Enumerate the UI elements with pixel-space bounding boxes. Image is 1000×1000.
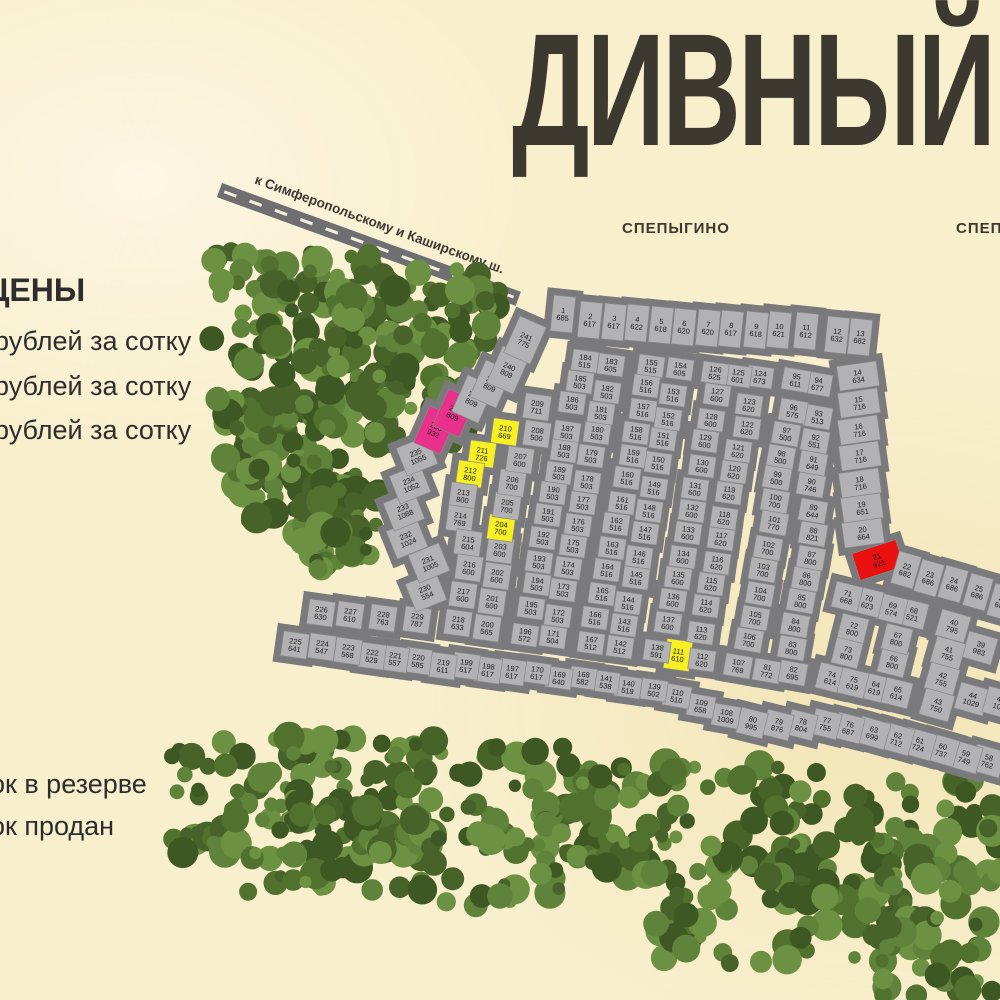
tree: [320, 517, 350, 547]
plot-95[interactable]: 95611: [781, 367, 811, 393]
plot-label: 215604: [461, 534, 476, 552]
tree: [214, 753, 238, 777]
legend-sold-label: ок продан: [0, 811, 114, 842]
tree: [667, 795, 689, 817]
plot-196[interactable]: 196572: [511, 623, 540, 647]
tree: [706, 878, 732, 904]
plot-112[interactable]: 112620: [688, 648, 717, 672]
plot-92[interactable]: 92551: [800, 428, 830, 454]
plot-102[interactable]: 102700: [753, 535, 783, 561]
tree: [249, 847, 261, 859]
plot-12[interactable]: 12632: [824, 316, 850, 354]
tree: [843, 784, 867, 808]
tree: [332, 857, 353, 878]
tree: [789, 780, 811, 802]
plot-135[interactable]: 135600: [664, 566, 693, 590]
plot-224[interactable]: 224547: [307, 633, 336, 661]
plot-10[interactable]: 10621: [766, 311, 792, 349]
plot-label: 128600: [704, 411, 719, 429]
plot-label: 185503: [573, 373, 588, 391]
plot-158[interactable]: 158516: [622, 421, 651, 445]
plot-label: 116620: [710, 554, 725, 572]
plot-label: 212800: [463, 465, 478, 483]
tree: [979, 819, 997, 837]
plot-165[interactable]: 165516: [588, 582, 617, 606]
tree: [911, 863, 943, 895]
plot-107[interactable]: 107769: [723, 653, 753, 679]
plot-148[interactable]: 148516: [635, 499, 664, 523]
plot-label: 156516: [639, 377, 654, 395]
plot-label: 197617: [505, 663, 520, 681]
tree: [289, 802, 313, 826]
tree: [258, 426, 277, 445]
plot-label: 214769: [453, 510, 468, 528]
plot-184[interactable]: 184515: [571, 349, 600, 373]
plot-label: 200565: [480, 619, 495, 637]
tree: [387, 746, 404, 763]
tree: [856, 822, 876, 842]
plot-label: 168582: [576, 669, 591, 687]
plot-3[interactable]: 3617: [601, 303, 627, 341]
plot-137[interactable]: 137600: [654, 611, 683, 635]
plot-17[interactable]: 17716: [838, 441, 881, 471]
plot-142[interactable]: 142512: [606, 635, 635, 659]
tree: [331, 483, 347, 499]
plot-119[interactable]: 119620: [715, 481, 744, 505]
plot-14[interactable]: 14634: [836, 361, 879, 391]
plot-label: 173503: [556, 581, 571, 599]
plot-157[interactable]: 157516: [629, 398, 658, 422]
plot-195[interactable]: 195503: [517, 596, 546, 620]
plot-label: 177503: [576, 494, 591, 512]
plot-83[interactable]: 83800: [777, 635, 807, 661]
plot-7[interactable]: 7620: [695, 309, 721, 347]
plot-label: 136600: [666, 591, 681, 609]
tree: [404, 402, 417, 415]
plot-114[interactable]: 114620: [692, 594, 721, 618]
plot-163[interactable]: 163516: [598, 536, 627, 560]
plot-192[interactable]: 192503: [529, 526, 558, 550]
tree: [409, 737, 422, 750]
tree: [345, 250, 358, 263]
plot-label: 112620: [695, 651, 710, 669]
plot-126[interactable]: 126525: [701, 361, 730, 385]
tree: [229, 421, 244, 436]
plot-label: 118620: [717, 509, 732, 527]
plot-label: 181503: [594, 404, 609, 422]
plot-178[interactable]: 178503: [573, 470, 602, 494]
plot-label: 216600: [462, 559, 477, 577]
price-line-1: рублей за сотку: [0, 326, 191, 357]
tree: [955, 782, 976, 803]
price-line-2: рублей за сотку: [0, 371, 191, 402]
plot-label: 176503: [571, 516, 586, 534]
plot-label: 184515: [578, 352, 593, 370]
plot-159[interactable]: 159516: [619, 444, 648, 468]
tree: [389, 876, 411, 898]
plot-105[interactable]: 105700: [740, 605, 770, 631]
tree: [285, 303, 299, 317]
tree: [421, 331, 449, 359]
tree: [298, 293, 319, 314]
tree: [360, 773, 374, 787]
plot-label: 187503: [560, 423, 575, 441]
plot-131[interactable]: 131600: [681, 477, 710, 501]
plot-label: 224547: [315, 638, 330, 656]
plot-218[interactable]: 218633: [443, 609, 472, 637]
tree: [772, 945, 801, 974]
plot-228[interactable]: 228763: [368, 604, 397, 632]
plot-132[interactable]: 132600: [678, 499, 707, 523]
tree: [354, 265, 374, 285]
tree: [762, 890, 781, 909]
plot-4[interactable]: 4622: [624, 304, 650, 342]
plot-207[interactable]: 207600: [505, 446, 534, 474]
tree: [349, 335, 363, 349]
plot-1[interactable]: 1685: [550, 295, 576, 333]
tree: [167, 837, 198, 868]
plot-label: 149516: [647, 479, 662, 497]
plot-label: 213800: [456, 487, 471, 505]
plot-label: 170617: [530, 664, 545, 682]
tree: [352, 795, 383, 826]
plot-9[interactable]: 9618: [743, 311, 769, 349]
plot-label: 219611: [436, 657, 451, 675]
plot-97[interactable]: 97500: [771, 421, 801, 447]
plot-label: 124673: [753, 368, 768, 386]
plot-164[interactable]: 164516: [593, 558, 622, 582]
tree: [340, 283, 368, 311]
plot-label: 139502: [647, 681, 662, 699]
tree: [232, 319, 251, 338]
plot-label: 157516: [636, 401, 651, 419]
plot-89[interactable]: 89644: [798, 498, 828, 524]
tree: [754, 863, 782, 891]
plot-label: 140519: [621, 678, 636, 696]
tree: [373, 735, 391, 753]
plot-172[interactable]: 172503: [544, 604, 573, 628]
plot-153[interactable]: 153516: [659, 383, 688, 407]
plot-144[interactable]: 144516: [614, 591, 643, 615]
tree: [421, 850, 447, 876]
plot-5[interactable]: 5618: [648, 306, 674, 344]
plot-label: 169640: [552, 669, 567, 687]
plot-label: 180503: [590, 424, 605, 442]
plot-200[interactable]: 200565: [472, 614, 501, 642]
plot-108[interactable]: 1081009: [711, 703, 741, 729]
plot-label: 134600: [676, 548, 691, 566]
plot-177[interactable]: 177503: [569, 491, 598, 515]
plot-8[interactable]: 8617: [718, 310, 744, 348]
tree: [319, 419, 336, 436]
plot-115[interactable]: 115620: [697, 572, 726, 596]
district-label-left: СПЕПЫГИНО: [622, 220, 730, 237]
tree: [373, 370, 387, 384]
plot-label: 225641: [288, 636, 303, 654]
tree: [276, 847, 288, 859]
plot-label: 131600: [688, 480, 703, 498]
tree: [811, 884, 838, 911]
tree: [282, 432, 304, 454]
plot-label: 126525: [708, 364, 723, 382]
plot-82[interactable]: 82695: [778, 660, 808, 686]
tree: [315, 804, 336, 825]
plot-label: 159516: [626, 447, 641, 465]
plot-15[interactable]: 15716: [837, 388, 880, 418]
plot-139[interactable]: 139502: [640, 678, 669, 702]
plot-label: 188503: [557, 442, 572, 460]
tree: [449, 764, 467, 782]
plot-label: 158516: [629, 424, 644, 442]
tree: [379, 275, 410, 306]
tree: [879, 939, 894, 954]
tree: [365, 422, 386, 443]
plot-label: 186503: [565, 394, 580, 412]
plot-227[interactable]: 227610: [335, 601, 364, 629]
tree: [936, 800, 954, 818]
tree: [419, 726, 448, 755]
plot-label: 166516: [588, 609, 603, 627]
plot-label: 148516: [642, 502, 657, 520]
plot-226[interactable]: 226630: [306, 599, 335, 627]
plot-label: 190503: [546, 484, 561, 502]
plot-128[interactable]: 128600: [697, 408, 726, 432]
plot-193[interactable]: 193503: [525, 550, 554, 574]
plot-label: 182503: [600, 383, 615, 401]
tree: [476, 291, 495, 310]
plot-label: 204700: [494, 519, 509, 537]
plot-label: 202600: [490, 567, 505, 585]
plot-120[interactable]: 120620: [720, 460, 749, 484]
plot-113[interactable]: 113620: [687, 621, 716, 645]
plot-106[interactable]: 106700: [734, 627, 764, 653]
plot-166[interactable]: 166516: [581, 606, 610, 630]
plot-6[interactable]: 6620: [671, 308, 697, 346]
plot-label: 195503: [524, 599, 539, 617]
plot-217[interactable]: 217600: [448, 581, 477, 609]
plot-label: 114620: [699, 597, 714, 615]
plot-label: 160516: [620, 469, 635, 487]
plot-88[interactable]: 88821: [798, 521, 828, 547]
tree: [883, 876, 903, 896]
plot-170[interactable]: 170617: [523, 661, 552, 685]
tree: [239, 363, 256, 380]
plot-174[interactable]: 174503: [554, 556, 583, 580]
tree: [360, 544, 372, 556]
tree: [190, 826, 203, 839]
plot-167[interactable]: 167512: [577, 631, 606, 655]
tree: [177, 767, 193, 783]
tree: [230, 784, 245, 799]
plot-149[interactable]: 149516: [640, 476, 669, 500]
plot-202[interactable]: 202600: [482, 562, 511, 590]
tree: [446, 341, 477, 372]
plot-118[interactable]: 118620: [710, 506, 739, 530]
tree: [740, 807, 768, 835]
plot-127[interactable]: 127600: [703, 383, 732, 407]
plot-188[interactable]: 188503: [550, 439, 579, 463]
plot-label: 183605: [604, 356, 619, 374]
plot-label: 145516: [629, 569, 644, 587]
plot-182[interactable]: 182503: [593, 380, 622, 404]
plot-210[interactable]: 210669: [490, 418, 519, 446]
tree: [445, 275, 475, 305]
tree: [369, 841, 392, 864]
plot-136[interactable]: 136600: [659, 588, 688, 612]
plot-81[interactable]: 81772: [752, 658, 782, 684]
tree: [813, 831, 841, 859]
tree: [255, 813, 270, 828]
plot-194[interactable]: 194503: [523, 572, 552, 596]
plot-121[interactable]: 121620: [724, 439, 753, 463]
plot-85[interactable]: 85800: [786, 588, 816, 614]
plot-208[interactable]: 208500: [522, 420, 551, 448]
tree: [408, 875, 438, 905]
tree: [873, 969, 894, 990]
plot-2[interactable]: 2617: [577, 301, 603, 339]
plot-label: 218633: [451, 614, 466, 632]
plot-label: 167512: [584, 634, 599, 652]
plot-209[interactable]: 209711: [522, 393, 551, 421]
tree: [672, 935, 700, 963]
plot-223[interactable]: 223568: [333, 637, 362, 665]
plot-173[interactable]: 173503: [549, 578, 578, 602]
plot-185[interactable]: 185503: [566, 370, 595, 394]
plot-186[interactable]: 186503: [558, 391, 587, 415]
plot-label: 203600: [493, 541, 508, 559]
plot-179[interactable]: 179503: [577, 444, 606, 468]
plot-147[interactable]: 147516: [631, 521, 660, 545]
plot-215[interactable]: 215604: [453, 529, 482, 557]
tree: [359, 527, 372, 540]
tree: [939, 880, 962, 903]
tree: [506, 827, 525, 846]
plot-190[interactable]: 190503: [539, 481, 568, 505]
plot-156[interactable]: 156516: [632, 374, 661, 398]
plot-117[interactable]: 117620: [707, 527, 736, 551]
plot-20[interactable]: 20664: [841, 518, 884, 548]
prices-heading: ЦЕНЫ: [0, 272, 85, 309]
plot-160[interactable]: 160516: [613, 466, 642, 490]
plot-152[interactable]: 152516: [654, 407, 683, 431]
plot-label: 164516: [600, 561, 615, 579]
plot-label: 175503: [566, 537, 581, 555]
plot-183[interactable]: 183605: [597, 353, 626, 377]
plot-label: 228763: [376, 609, 391, 627]
tree: [906, 984, 927, 1000]
plot-175[interactable]: 175503: [559, 534, 588, 558]
tree: [700, 779, 716, 795]
tree: [472, 311, 501, 340]
plot-130[interactable]: 130600: [688, 454, 717, 478]
plot-171[interactable]: 171504: [539, 625, 568, 649]
plot-191[interactable]: 191503: [534, 503, 563, 527]
plot-150[interactable]: 150516: [644, 451, 673, 475]
plot-84[interactable]: 84800: [780, 612, 810, 638]
tree: [848, 951, 861, 964]
tree: [590, 818, 609, 837]
plot-16[interactable]: 16716: [837, 415, 880, 445]
tree: [164, 748, 180, 764]
plot-176[interactable]: 176503: [564, 513, 593, 537]
plot-146[interactable]: 146516: [625, 545, 654, 569]
plot-label: 207600: [513, 451, 528, 469]
plot-201[interactable]: 201600: [477, 588, 506, 616]
plot-145[interactable]: 145516: [622, 566, 651, 590]
plot-133[interactable]: 133600: [674, 521, 703, 545]
tree: [346, 381, 378, 413]
plot-label: 172503: [551, 607, 566, 625]
plot-138[interactable]: 138591: [643, 639, 672, 663]
plot-label: 201600: [485, 593, 500, 611]
tree: [586, 855, 599, 868]
plot-label: 123620: [742, 396, 757, 414]
plot-181[interactable]: 181503: [587, 401, 616, 425]
plot-label: 210669: [498, 423, 513, 441]
plot-104[interactable]: 104700: [745, 581, 775, 607]
plot-122[interactable]: 122620: [733, 416, 762, 440]
tree: [778, 882, 804, 908]
plot-134[interactable]: 134600: [669, 545, 698, 569]
plot-123[interactable]: 123620: [735, 393, 764, 417]
plot-13[interactable]: 13682: [847, 318, 873, 356]
tree: [487, 883, 512, 908]
tree: [807, 763, 826, 782]
tree: [655, 829, 668, 842]
tree: [277, 280, 300, 303]
plot-87[interactable]: 87800: [796, 545, 826, 571]
tree: [522, 778, 543, 799]
plot-96[interactable]: 96575: [778, 398, 808, 424]
tree: [281, 399, 296, 414]
plot-99[interactable]: 99500: [762, 465, 792, 491]
tree: [717, 858, 732, 873]
plot-154[interactable]: 154605: [666, 357, 695, 381]
plot-label: 171504: [546, 628, 561, 646]
tree: [689, 863, 706, 880]
tree: [521, 738, 548, 765]
tree: [444, 303, 460, 319]
tree: [476, 825, 506, 855]
plot-162[interactable]: 162516: [602, 512, 631, 536]
plot-161[interactable]: 161516: [608, 491, 637, 515]
plot-11[interactable]: 11612: [793, 312, 819, 350]
tree: [953, 860, 977, 884]
tree: [660, 758, 687, 785]
plot-219[interactable]: 219611: [428, 652, 457, 680]
tree: [617, 763, 630, 776]
plot-143[interactable]: 143516: [610, 613, 639, 637]
tree: [209, 269, 234, 294]
plot-101[interactable]: 101770: [759, 510, 789, 536]
tree: [449, 262, 464, 277]
plot-116[interactable]: 116620: [703, 551, 732, 575]
tree: [249, 459, 270, 480]
tree: [315, 375, 345, 405]
tree: [405, 260, 431, 286]
tree: [178, 743, 205, 770]
plot-216[interactable]: 216600: [454, 554, 483, 582]
plot-129[interactable]: 129600: [691, 429, 720, 453]
plot-label: 138591: [650, 642, 665, 660]
plot-103[interactable]: 103700: [748, 557, 778, 583]
tree: [902, 796, 919, 813]
plot-label: 226630: [314, 604, 329, 622]
tree: [286, 746, 301, 761]
plot-label: 154605: [673, 360, 688, 378]
tree: [441, 867, 464, 890]
plot-225[interactable]: 225641: [280, 631, 309, 659]
